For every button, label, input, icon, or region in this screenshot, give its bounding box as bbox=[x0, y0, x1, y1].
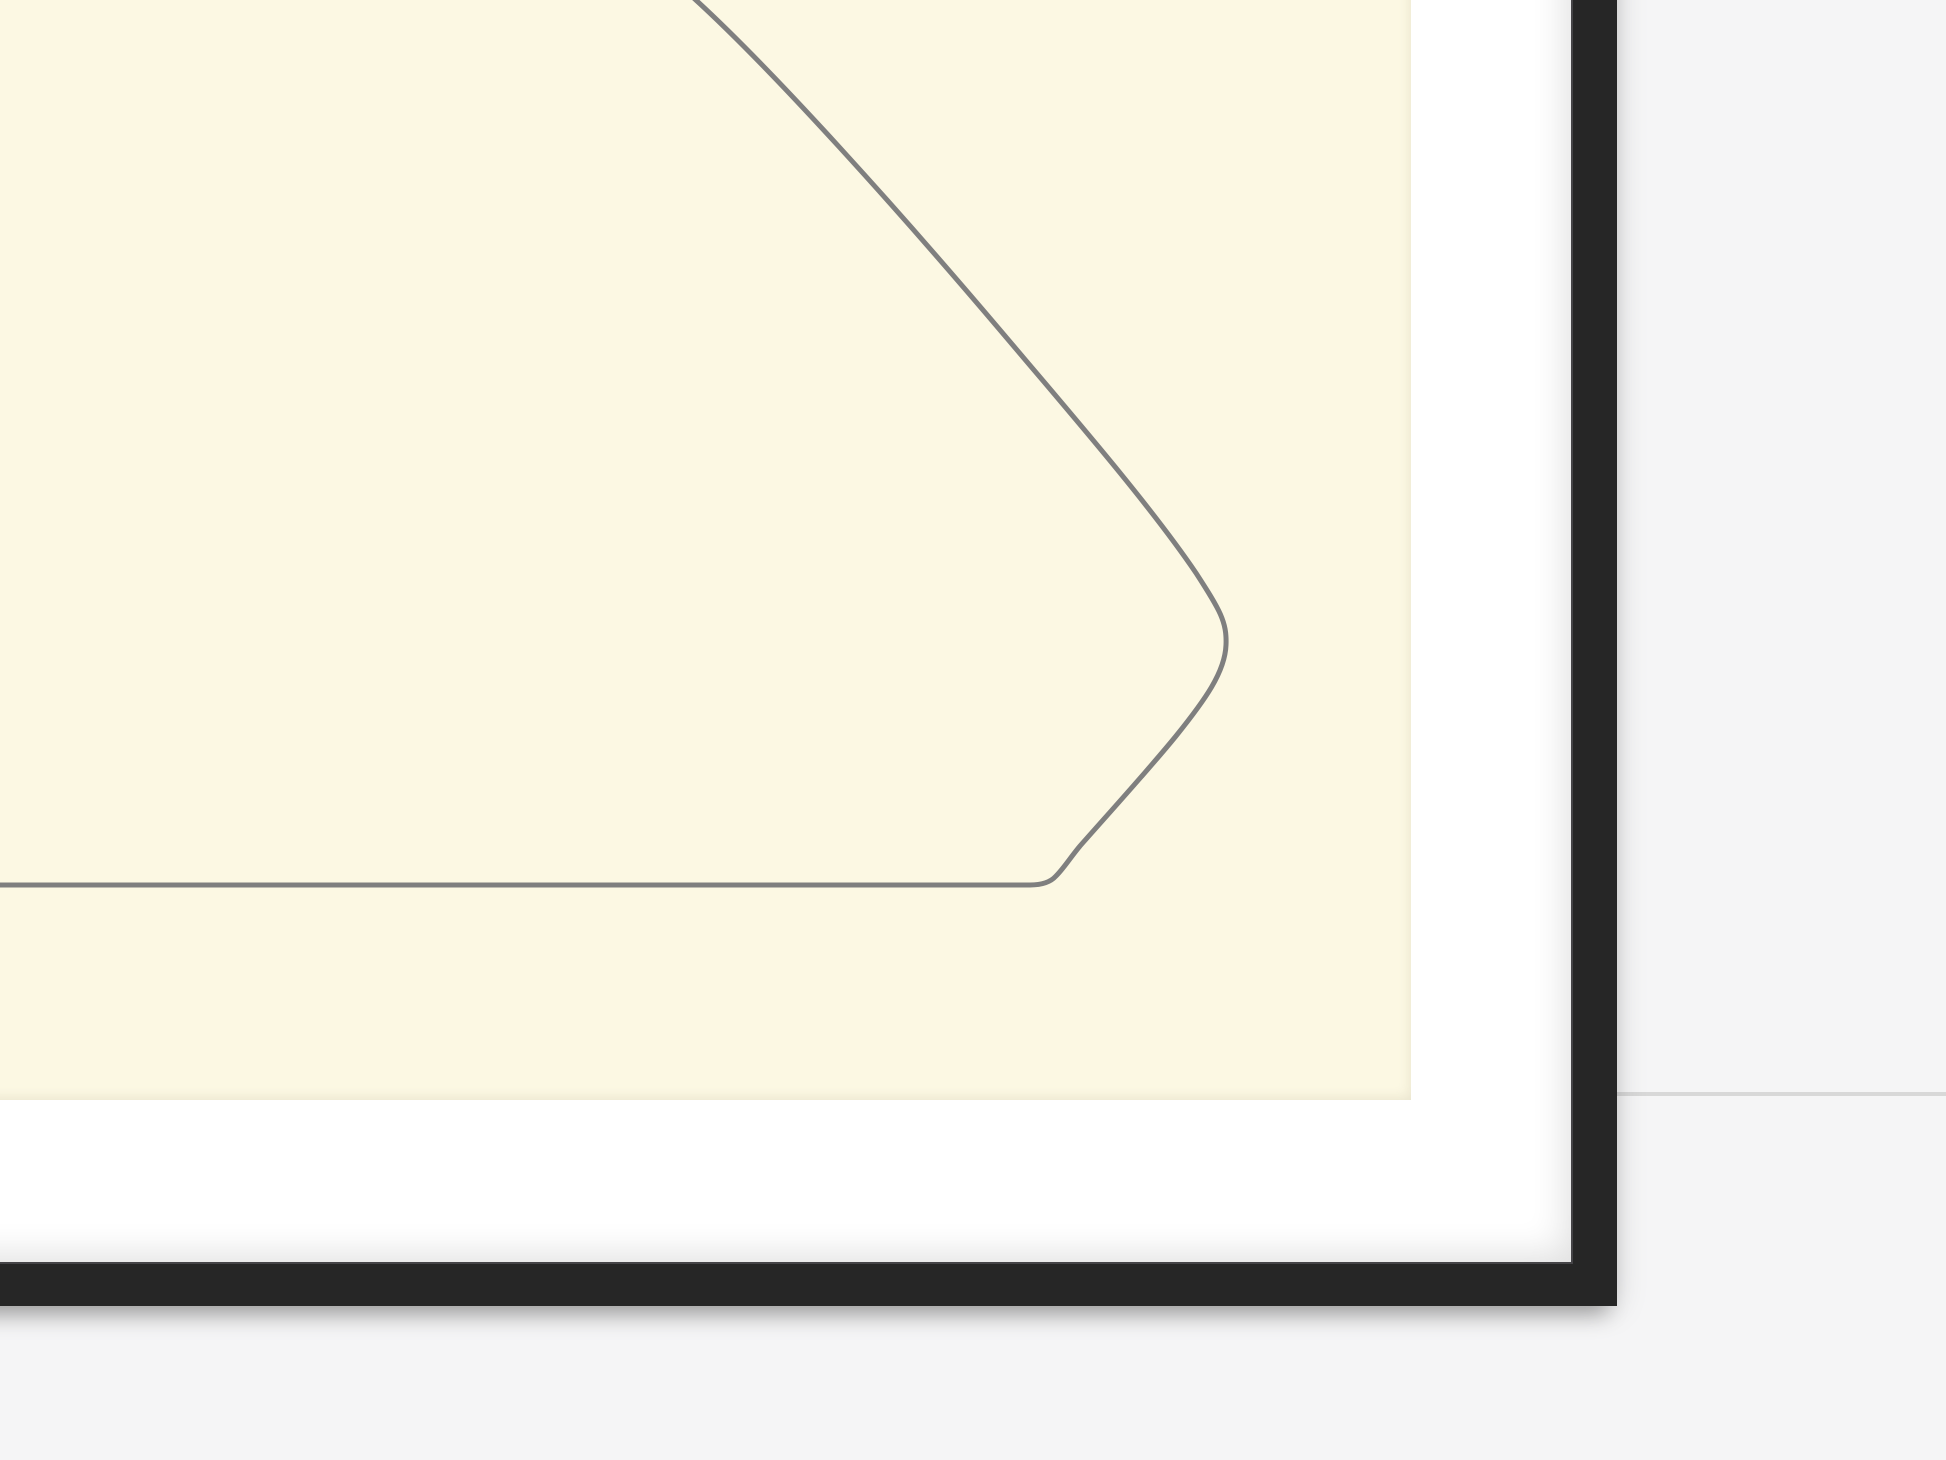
frame-mat bbox=[0, 0, 1571, 1262]
picture-frame bbox=[0, 0, 1617, 1306]
diagram-line bbox=[0, 0, 1226, 885]
wall bbox=[0, 0, 1946, 1460]
diagram-stroke-group bbox=[0, 0, 1226, 885]
artwork-paper bbox=[0, 0, 1411, 1100]
artwork-drawing bbox=[0, 0, 1411, 1100]
